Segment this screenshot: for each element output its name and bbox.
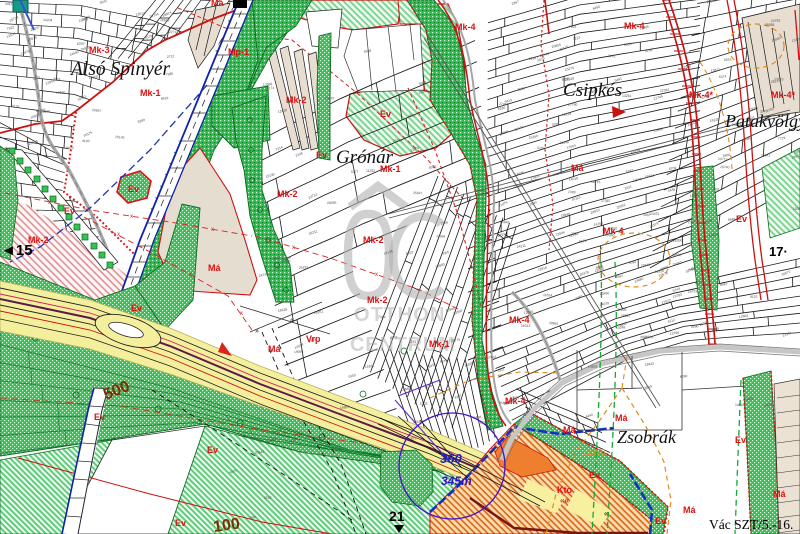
- svg-text:3118: 3118: [53, 77, 61, 81]
- svg-text:Ev: Ev: [128, 184, 139, 194]
- svg-text:13251: 13251: [622, 94, 632, 98]
- svg-text:x: x: [375, 272, 378, 278]
- svg-text:Má: Má: [773, 489, 786, 499]
- svg-text:18835: 18835: [281, 259, 291, 263]
- svg-text:22598: 22598: [672, 253, 682, 257]
- svg-text:29740: 29740: [720, 165, 730, 169]
- svg-text:14964: 14964: [436, 234, 446, 239]
- svg-text:16846: 16846: [500, 220, 510, 224]
- svg-text:x: x: [292, 245, 295, 251]
- svg-text:12106: 12106: [583, 448, 606, 457]
- svg-text:345m: 345m: [441, 474, 472, 488]
- svg-text:x: x: [211, 227, 214, 233]
- svg-text:Mk-2: Mk-2: [367, 295, 388, 305]
- svg-text:Csipkés: Csipkés: [563, 80, 622, 101]
- svg-text:Ev: Ev: [655, 516, 666, 526]
- svg-text:13186: 13186: [413, 420, 423, 424]
- svg-text:7801: 7801: [569, 25, 577, 29]
- svg-text:Mk-3: Mk-3: [89, 45, 110, 55]
- svg-text:17367: 17367: [601, 199, 611, 203]
- svg-text:20460: 20460: [600, 291, 610, 296]
- svg-text:Ev: Ev: [736, 214, 747, 224]
- svg-text:4103: 4103: [82, 139, 90, 143]
- svg-text:Zsobrák: Zsobrák: [617, 427, 677, 447]
- svg-text:22272: 22272: [167, 30, 177, 34]
- svg-text:9152: 9152: [750, 295, 758, 299]
- svg-text:21: 21: [389, 508, 405, 524]
- svg-text:Má: Má: [571, 163, 584, 173]
- svg-text:15307: 15307: [793, 207, 800, 211]
- svg-text:x: x: [130, 214, 133, 220]
- svg-text:Patakvölgy: Patakvölgy: [724, 111, 800, 131]
- svg-text:6474: 6474: [719, 74, 727, 79]
- svg-text:Mp-1: Mp-1: [228, 47, 249, 57]
- svg-text:x: x: [189, 272, 192, 278]
- svg-text:x: x: [117, 232, 120, 238]
- svg-text:29712: 29712: [718, 157, 728, 161]
- svg-text:Mk-1: Mk-1: [380, 164, 401, 174]
- svg-text:OTTHON: OTTHON: [354, 304, 446, 326]
- svg-text:3407: 3407: [643, 213, 651, 217]
- svg-text:3431: 3431: [712, 187, 720, 192]
- svg-text:Mk-4: Mk-4: [624, 21, 645, 31]
- svg-text:25146: 25146: [115, 135, 125, 140]
- svg-text:6290: 6290: [537, 146, 545, 150]
- svg-text:8528: 8528: [264, 496, 272, 500]
- svg-text:Má: Má: [268, 344, 281, 354]
- svg-text:Mk-2: Mk-2: [286, 95, 307, 105]
- svg-text:14863: 14863: [735, 403, 745, 407]
- svg-text:24516: 24516: [41, 109, 51, 114]
- svg-text:Ev: Ev: [131, 303, 142, 313]
- svg-text:Mk-2: Mk-2: [277, 189, 298, 199]
- svg-text:24287: 24287: [325, 96, 335, 100]
- svg-text:9290: 9290: [691, 324, 699, 329]
- svg-text:Vrp: Vrp: [306, 334, 321, 344]
- svg-text:6543: 6543: [724, 58, 732, 62]
- svg-text:15837: 15837: [621, 314, 631, 318]
- svg-text:Ev: Ev: [207, 445, 218, 455]
- svg-text:4597: 4597: [408, 114, 416, 118]
- svg-text:25941: 25941: [761, 153, 771, 158]
- svg-text:Má: Má: [211, 0, 224, 8]
- svg-text:Kto: Kto: [557, 485, 572, 495]
- svg-text:13773: 13773: [774, 77, 784, 81]
- svg-text:2389: 2389: [568, 190, 576, 194]
- svg-text:Má: Má: [208, 263, 221, 273]
- svg-text:2734: 2734: [571, 232, 579, 236]
- svg-text:Mk-4*: Mk-4*: [771, 90, 796, 100]
- svg-text:»: »: [255, 328, 259, 335]
- svg-text:19093: 19093: [294, 350, 304, 354]
- svg-text:Ev: Ev: [64, 206, 75, 216]
- svg-text:24431: 24431: [650, 212, 660, 216]
- svg-text:Ev: Ev: [175, 518, 186, 528]
- svg-text:26957: 26957: [92, 108, 102, 113]
- svg-text:25647: 25647: [413, 191, 423, 195]
- svg-text:Ev: Ev: [94, 412, 105, 422]
- svg-text:Alsó Spinyér: Alsó Spinyér: [69, 59, 171, 80]
- svg-text:Mk-4: Mk-4: [455, 22, 476, 32]
- svg-text:11146: 11146: [560, 140, 569, 145]
- svg-text:Ev: Ev: [589, 470, 600, 480]
- svg-text:Mk-1: Mk-1: [429, 339, 450, 349]
- svg-text:20132: 20132: [10, 104, 20, 108]
- svg-text:20499: 20499: [617, 308, 627, 312]
- svg-text:28861: 28861: [549, 321, 559, 326]
- svg-text:25555: 25555: [765, 23, 775, 27]
- svg-text:◄15: ◄15: [1, 242, 33, 259]
- svg-text:5077: 5077: [351, 170, 359, 174]
- svg-text:5755: 5755: [480, 420, 488, 425]
- svg-text:Mk-1: Mk-1: [140, 88, 161, 98]
- svg-text:2201: 2201: [608, 54, 616, 58]
- svg-text:Ev: Ev: [316, 150, 327, 160]
- svg-text:20495: 20495: [327, 201, 337, 205]
- svg-text:Má: Má: [563, 425, 576, 435]
- svg-text:4873: 4873: [409, 436, 417, 441]
- svg-text:11824: 11824: [543, 293, 552, 297]
- svg-text:«: «: [604, 509, 609, 518]
- svg-text:13696: 13696: [56, 91, 66, 95]
- svg-text:24204: 24204: [43, 18, 53, 22]
- svg-text:«: «: [290, 317, 294, 324]
- svg-text:Má: Má: [683, 505, 696, 515]
- svg-text:Mk-4: Mk-4: [509, 315, 530, 325]
- svg-text:Ev: Ev: [735, 435, 746, 445]
- svg-text:3487: 3487: [249, 515, 257, 520]
- svg-text:8047: 8047: [720, 282, 728, 287]
- svg-text:360: 360: [440, 451, 462, 466]
- svg-text:27790: 27790: [568, 103, 578, 107]
- svg-text:10716: 10716: [591, 180, 601, 184]
- svg-text:11232: 11232: [366, 169, 375, 173]
- svg-text:13828: 13828: [588, 365, 598, 369]
- svg-text:««: ««: [560, 496, 569, 505]
- svg-text:Mk-4: Mk-4: [505, 396, 526, 406]
- svg-text:5703: 5703: [420, 402, 428, 406]
- svg-text:x: x: [240, 311, 243, 317]
- svg-text:Vác SZT/5.-16.: Vác SZT/5.-16.: [709, 517, 793, 532]
- svg-text:17·: 17·: [769, 244, 788, 259]
- svg-text:Ev: Ev: [380, 109, 391, 119]
- svg-text:16655: 16655: [160, 18, 170, 23]
- svg-text:100: 100: [212, 515, 241, 534]
- svg-text:3172: 3172: [390, 335, 398, 340]
- svg-text:7384: 7384: [378, 315, 386, 319]
- svg-text:Mk-2: Mk-2: [363, 235, 384, 245]
- svg-text:Mk-4*: Mk-4*: [689, 90, 714, 100]
- svg-text:Mk-4: Mk-4: [603, 226, 624, 236]
- svg-text:x: x: [48, 200, 51, 206]
- svg-text:8329: 8329: [77, 41, 85, 46]
- svg-text:22503: 22503: [644, 335, 654, 339]
- svg-text:25350: 25350: [673, 238, 683, 243]
- svg-text:12517: 12517: [409, 340, 419, 344]
- svg-text:27464: 27464: [499, 102, 509, 106]
- svg-text:9820: 9820: [66, 146, 74, 150]
- svg-text:Má: Má: [615, 413, 628, 423]
